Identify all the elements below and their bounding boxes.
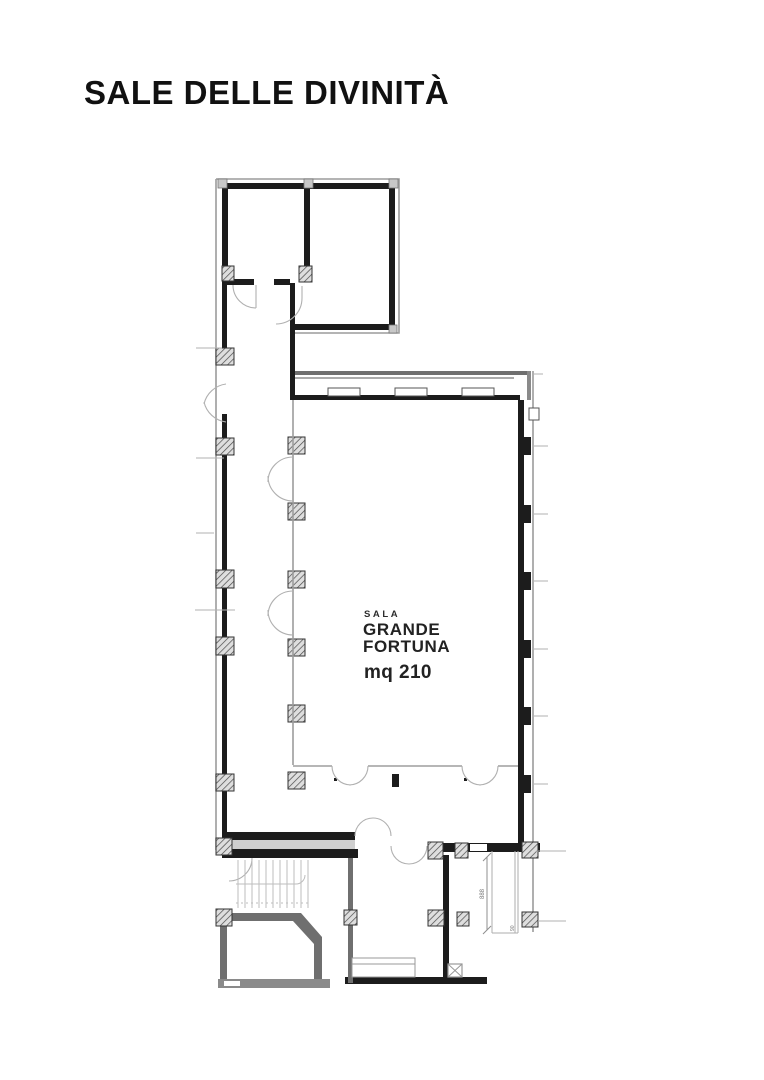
hall-left-door-2 xyxy=(268,591,293,635)
dimension-value-small: 90 xyxy=(510,925,516,931)
room-label-line2: FORTUNA xyxy=(363,637,450,656)
staircase xyxy=(236,860,308,908)
vestibule-door xyxy=(276,286,302,324)
room-label-group: SALA GRANDE FORTUNA mq 210 xyxy=(363,609,450,683)
hall-left-door-1 xyxy=(268,457,293,501)
shaft xyxy=(492,851,518,933)
exterior-four-leaf-door xyxy=(355,818,427,864)
small-room-door xyxy=(233,285,256,308)
stair-door xyxy=(229,858,252,881)
table xyxy=(352,958,415,977)
dimension-value-vertical: 888 xyxy=(480,888,486,899)
dimension-labels: 888 90 xyxy=(480,888,516,931)
pilasters xyxy=(216,266,538,927)
floor-plan: SALA GRANDE FORTUNA mq 210 888 90 xyxy=(0,0,764,1080)
exterior-outline xyxy=(216,179,533,932)
room-label-small: SALA xyxy=(364,609,400,620)
hall-boundary xyxy=(293,400,518,766)
room-area-label: mq 210 xyxy=(364,662,432,683)
hall-south-door-2 xyxy=(462,766,498,785)
floor-plan-page: SALE DELLE DIVINITÀ xyxy=(0,0,764,1080)
hall-south-door-1 xyxy=(332,766,368,785)
window-notches xyxy=(328,388,539,420)
